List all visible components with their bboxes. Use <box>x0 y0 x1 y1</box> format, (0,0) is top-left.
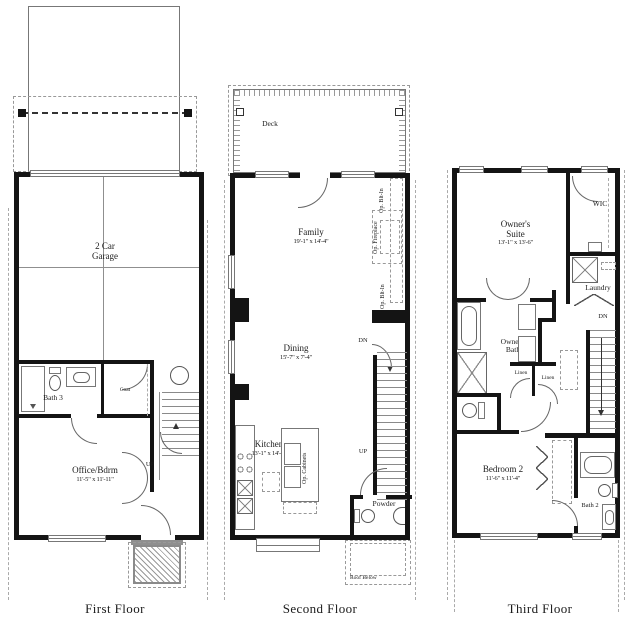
stairs-dn-label: DN <box>593 313 613 320</box>
bifold-closet-doors <box>536 446 548 468</box>
owners-suite-label: Owner's Suite 13'-1" x 13'-6" <box>478 220 553 246</box>
wall <box>574 438 578 498</box>
shelf <box>588 242 602 252</box>
bifold-closet-doors <box>536 468 548 490</box>
tub-basin <box>461 306 477 346</box>
mechanical-chase-dashed <box>560 350 578 390</box>
window <box>521 166 548 173</box>
roof-line-dashed <box>454 540 455 612</box>
room-name: Laundry <box>585 283 610 292</box>
toilet-icon <box>462 401 488 421</box>
property-line <box>624 170 625 600</box>
wall <box>545 433 620 438</box>
third-floor-plan: Owner's Suite 13'-1" x 13'-6" WIC Laundr… <box>0 0 639 627</box>
stair-arrow-head <box>598 410 604 416</box>
room-name: WIC <box>593 199 608 208</box>
vanity-cabinet <box>518 304 536 330</box>
label-text: Linen <box>542 375 555 381</box>
closet-dashed <box>552 440 572 504</box>
bedroom2-label: Bedroom 2 11'-6" x 11'-4" <box>468 465 538 482</box>
window <box>480 533 538 540</box>
label-text: Linen <box>515 370 528 376</box>
wall <box>566 252 570 304</box>
vanity-cabinet <box>518 336 536 362</box>
room-dims: 11'-6" x 11'-4" <box>468 475 538 482</box>
roof-line-dashed <box>618 540 619 612</box>
linen-label: Linen <box>535 376 561 382</box>
window <box>572 533 602 540</box>
bifold-doors <box>574 294 614 306</box>
toilet-bowl <box>462 403 477 418</box>
wall <box>566 173 570 255</box>
linen-label: Linen <box>508 371 534 377</box>
room-name: Bedroom 2 <box>468 465 538 475</box>
room-name: Owner's Suite <box>491 220 541 239</box>
sink-icon <box>602 504 616 530</box>
bathtub-icon <box>580 452 615 478</box>
wic-label: WIC <box>584 200 616 208</box>
wall <box>538 318 542 366</box>
sink-basin <box>605 510 614 525</box>
stair-treads <box>590 330 616 435</box>
closet-rod-line <box>608 178 609 248</box>
title-text: Third Floor <box>508 601 573 616</box>
stair-arrow-line <box>601 338 602 412</box>
washer-icon <box>572 257 598 283</box>
toilet-tank <box>612 483 618 498</box>
toilet-icon <box>598 483 618 499</box>
laundry-label: Laundry <box>576 284 620 292</box>
toilet-bowl <box>598 484 611 497</box>
shelf-dashed <box>601 262 616 270</box>
bathtub-icon <box>457 302 481 350</box>
wall <box>566 252 620 256</box>
room-dims: 13'-1" x 13'-6" <box>478 239 553 246</box>
wall <box>497 393 501 430</box>
property-line <box>447 170 448 600</box>
room-name: Bath 2 <box>581 502 598 509</box>
tub-basin <box>584 456 612 474</box>
wall <box>457 430 519 434</box>
third-floor-title: Third Floor <box>485 601 595 617</box>
stairs-dn-text: DN <box>598 313 607 320</box>
shower-icon <box>457 352 487 394</box>
toilet-tank <box>478 402 485 419</box>
wall <box>457 393 501 397</box>
window <box>581 166 608 173</box>
window <box>459 166 484 173</box>
floor-plan-sheet: 2 Car Garage Bath 3 Coat <box>0 0 639 627</box>
